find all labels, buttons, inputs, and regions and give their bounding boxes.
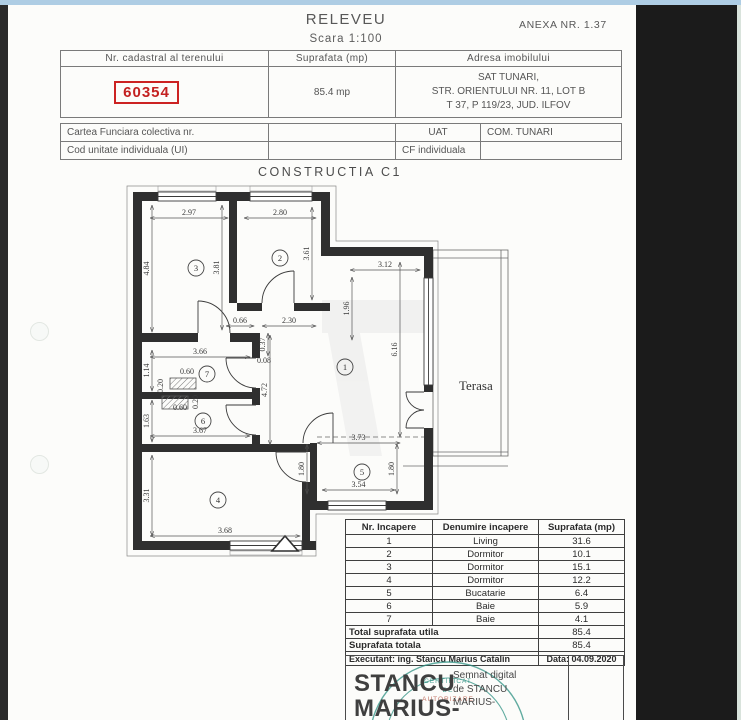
signature-cell-divider	[568, 656, 569, 720]
total-util-label: Total suprafata utila	[346, 626, 539, 639]
table-row: 5Bucatarie6.4	[346, 587, 625, 600]
walls	[133, 192, 433, 550]
cf-empty-cell	[269, 124, 396, 142]
total-label: Suprafata totala	[346, 639, 539, 652]
ui-label: Cod unitate individuala (UI)	[61, 142, 269, 160]
dimension-label: 1.14	[142, 364, 151, 378]
room-areas-table: Nr. Incapere Denumire incapere Suprafata…	[345, 519, 625, 666]
col-header-area: Suprafata (mp)	[269, 51, 396, 67]
dimension-label: 3.67	[193, 426, 207, 435]
hole-punch-mark	[30, 322, 49, 341]
cadastral-number-stamp: 60354	[114, 81, 179, 104]
col-header-address: Adresa imobilului	[396, 51, 622, 67]
table-row: 1Living31.6	[346, 535, 625, 548]
table-cell: 31.6	[539, 535, 625, 548]
photo-watermark	[322, 300, 424, 456]
room-number-label: 6	[201, 416, 205, 426]
table-cell: 6	[346, 600, 433, 613]
dimension-label: 2.97	[182, 208, 196, 217]
scan-dark-background	[636, 5, 737, 720]
table-cell: Dormitor	[433, 561, 539, 574]
cf-empty-cell	[269, 142, 396, 160]
scale-label: Scara 1:100	[301, 33, 391, 45]
table-cell: 5.9	[539, 600, 625, 613]
table-cell: 10.1	[539, 548, 625, 561]
room-number-label: 4	[216, 495, 221, 505]
cf-table: Cartea Funciara colectiva nr. UAT COM. T…	[60, 123, 622, 160]
table-row: 6Baie5.9	[346, 600, 625, 613]
table-cell: 5	[346, 587, 433, 600]
annex-label: ANEXA NR. 1.37	[519, 19, 607, 31]
dimension-label: 3.12	[378, 260, 392, 269]
scanned-document-page: RELEVEU Scara 1:100 ANEXA NR. 1.37 Nr. c…	[0, 0, 741, 720]
dimension-label: 1.63	[142, 414, 151, 428]
dimension-label: 0.08	[257, 356, 271, 365]
dimension-label: 0.66	[233, 316, 247, 325]
signer-name: STANCU MARIUS-	[354, 671, 460, 720]
table-cell: Baie	[433, 613, 539, 626]
table-cell: 4	[346, 574, 433, 587]
scan-left-edge	[0, 5, 8, 720]
construction-title: CONSTRUCTIA C1	[230, 165, 430, 179]
table-cell: Living	[433, 535, 539, 548]
room-number-label: 2	[278, 253, 282, 263]
room-number-label: 7	[205, 369, 209, 379]
address-block: SAT TUNARI, STR. ORIENTULUI NR. 11, LOT …	[396, 71, 621, 113]
table-cell: 12.2	[539, 574, 625, 587]
table-cell: Baie	[433, 600, 539, 613]
col-header-cadastral: Nr. cadastral al terenului	[61, 51, 269, 67]
scan-top-edge	[0, 0, 741, 5]
floor-plan-drawing: Terasa 2.972.803.120.662.303.663.673.733…	[100, 180, 544, 572]
dimension-label: 3.66	[193, 347, 207, 356]
table-row: 3Dormitor15.1	[346, 561, 625, 574]
terrace-outline	[403, 250, 508, 466]
room-number-label: 3	[194, 263, 198, 273]
dimension-label: 0.37	[258, 338, 267, 352]
address-line: SAT TUNARI,	[396, 71, 621, 85]
cadastral-table: Nr. cadastral al terenului Suprafata (mp…	[60, 50, 622, 118]
room-number-label: 5	[360, 467, 364, 477]
dimension-label: 3.73	[352, 433, 366, 442]
cf-empty-cell	[481, 142, 622, 160]
dimension-label: 3.54	[352, 480, 366, 489]
dimension-label: 0.20	[191, 395, 200, 409]
total-util-value: 85.4	[539, 626, 625, 639]
document-title: RELEVEU	[301, 11, 391, 28]
area-value: 85.4 mp	[269, 67, 396, 118]
total-value: 85.4	[539, 639, 625, 652]
table-cell: 15.1	[539, 561, 625, 574]
hole-punch-mark	[30, 455, 49, 474]
uat-label: UAT	[396, 124, 481, 142]
dimension-label: 2.30	[282, 316, 296, 325]
table-cell: Bucatarie	[433, 587, 539, 600]
room-col-header: Nr. Incapere	[346, 520, 433, 535]
table-cell: Dormitor	[433, 548, 539, 561]
table-row: 2Dormitor10.1	[346, 548, 625, 561]
dimension-label: 0.20	[156, 379, 165, 393]
dimension-label: 4.72	[260, 383, 269, 397]
table-cell: 4.1	[539, 613, 625, 626]
table-cell: 2	[346, 548, 433, 561]
dimension-label: 0.60	[180, 367, 194, 376]
table-row: 7Baie4.1	[346, 613, 625, 626]
address-line: STR. ORIENTULUI NR. 11, LOT B	[396, 85, 621, 99]
cf-individuala-label: CF individuala	[396, 142, 481, 160]
dimension-label: 3.68	[218, 526, 232, 535]
cf-label: Cartea Funciara colectiva nr.	[61, 124, 269, 142]
dimension-label: 1.96	[342, 302, 351, 316]
dimension-label: 3.81	[212, 261, 221, 275]
signature-block: CERTIFICAT DE AUTORIZARE STANCU MARIUS- …	[345, 655, 624, 720]
room-col-header: Denumire incapere	[433, 520, 539, 535]
address-line: T 37, P 119/23, JUD. ILFOV	[396, 99, 621, 113]
table-cell: 6.4	[539, 587, 625, 600]
dimension-label: 6.16	[390, 343, 399, 357]
dimension-label: 2.80	[273, 208, 287, 217]
table-cell: 1	[346, 535, 433, 548]
uat-value: COM. TUNARI	[481, 124, 622, 142]
dimension-label: 3.31	[142, 489, 151, 503]
terasa-label: Terasa	[459, 378, 493, 393]
dimension-label: 0.60	[173, 403, 187, 412]
room-table-body: 1Living31.62Dormitor10.13Dormitor15.14Do…	[346, 535, 625, 626]
dimension-label: 3.61	[302, 247, 311, 261]
dimension-label: 1.80	[387, 462, 396, 476]
scan-right-edge	[737, 5, 741, 720]
room-col-header: Suprafata (mp)	[539, 520, 625, 535]
dimension-label: 1.80	[297, 462, 306, 476]
table-row: 4Dormitor12.2	[346, 574, 625, 587]
room-number-label: 1	[343, 362, 347, 372]
dimension-label: 4.84	[142, 262, 151, 276]
table-cell: 7	[346, 613, 433, 626]
table-cell: 3	[346, 561, 433, 574]
digital-signature-note: Semnat digital de STANCU MARIUS-	[453, 669, 516, 710]
table-cell: Dormitor	[433, 574, 539, 587]
building-outline	[127, 186, 438, 556]
